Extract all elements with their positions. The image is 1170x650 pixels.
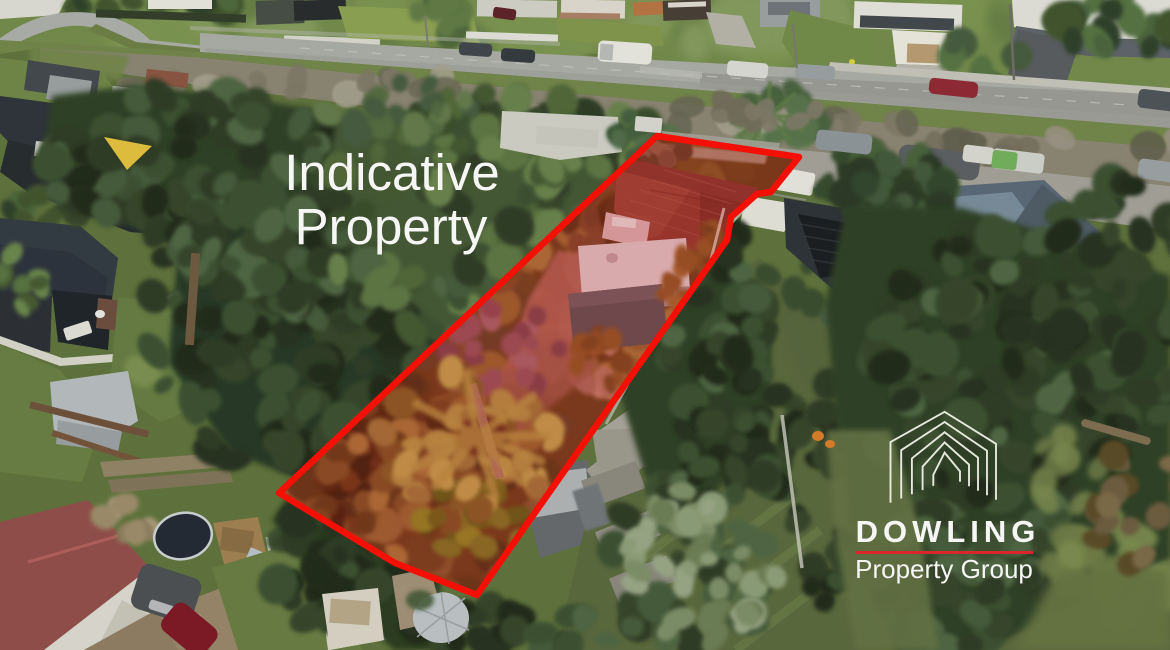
svg-text:DOWLING: DOWLING — [856, 514, 1041, 549]
svg-text:Indicative: Indicative — [284, 144, 499, 201]
svg-text:Property: Property — [295, 198, 488, 255]
svg-text:Property Group: Property Group — [855, 554, 1033, 584]
